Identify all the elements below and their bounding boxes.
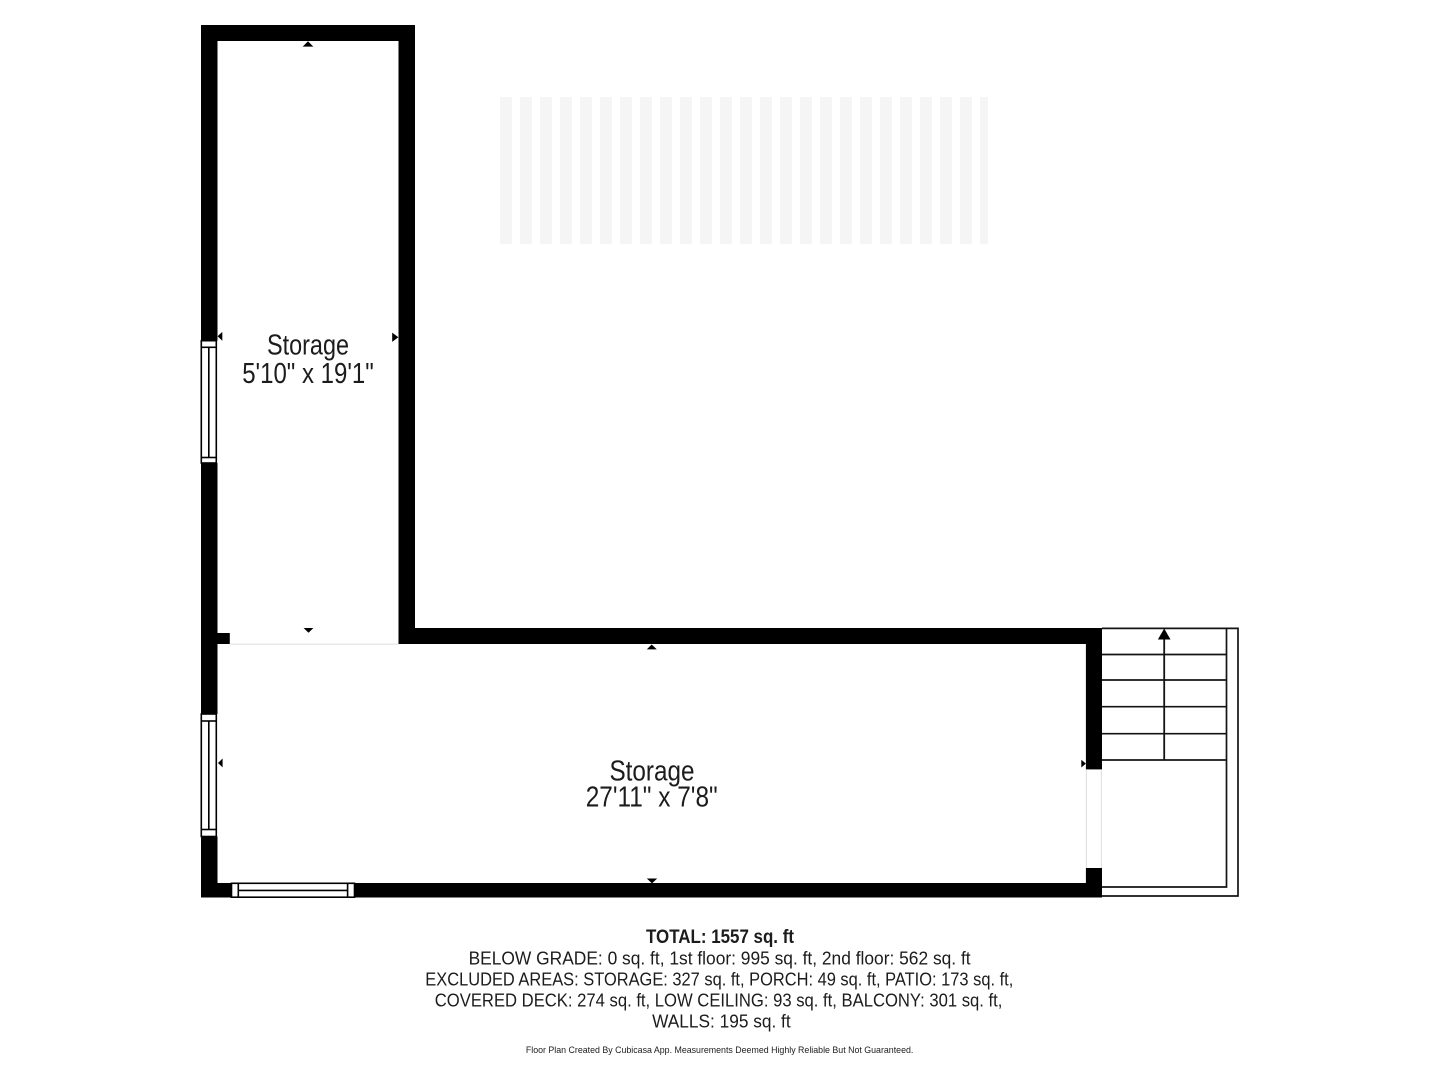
svg-text:TOTAL: 1557 sq. ft: TOTAL: 1557 sq. ft — [646, 927, 795, 948]
svg-text:Storage: Storage — [267, 330, 349, 362]
svg-text:27'11" x 7'8": 27'11" x 7'8" — [586, 781, 718, 813]
svg-text:EXCLUDED AREAS: STORAGE: 327 s: EXCLUDED AREAS: STORAGE: 327 sq. ft, POR… — [425, 969, 1013, 989]
svg-text:5'10" x 19'1": 5'10" x 19'1" — [242, 358, 374, 390]
svg-text:Floor Plan Created By Cubicasa: Floor Plan Created By Cubicasa App. Meas… — [526, 1045, 914, 1055]
svg-text:BELOW GRADE: 0 sq. ft, 1st flo: BELOW GRADE: 0 sq. ft, 1st floor: 995 sq… — [469, 948, 971, 968]
svg-text:WALLS: 195 sq. ft: WALLS: 195 sq. ft — [652, 1011, 791, 1031]
svg-text:COVERED DECK: 274 sq. ft, LOW: COVERED DECK: 274 sq. ft, LOW CEILING: 9… — [435, 990, 1003, 1010]
